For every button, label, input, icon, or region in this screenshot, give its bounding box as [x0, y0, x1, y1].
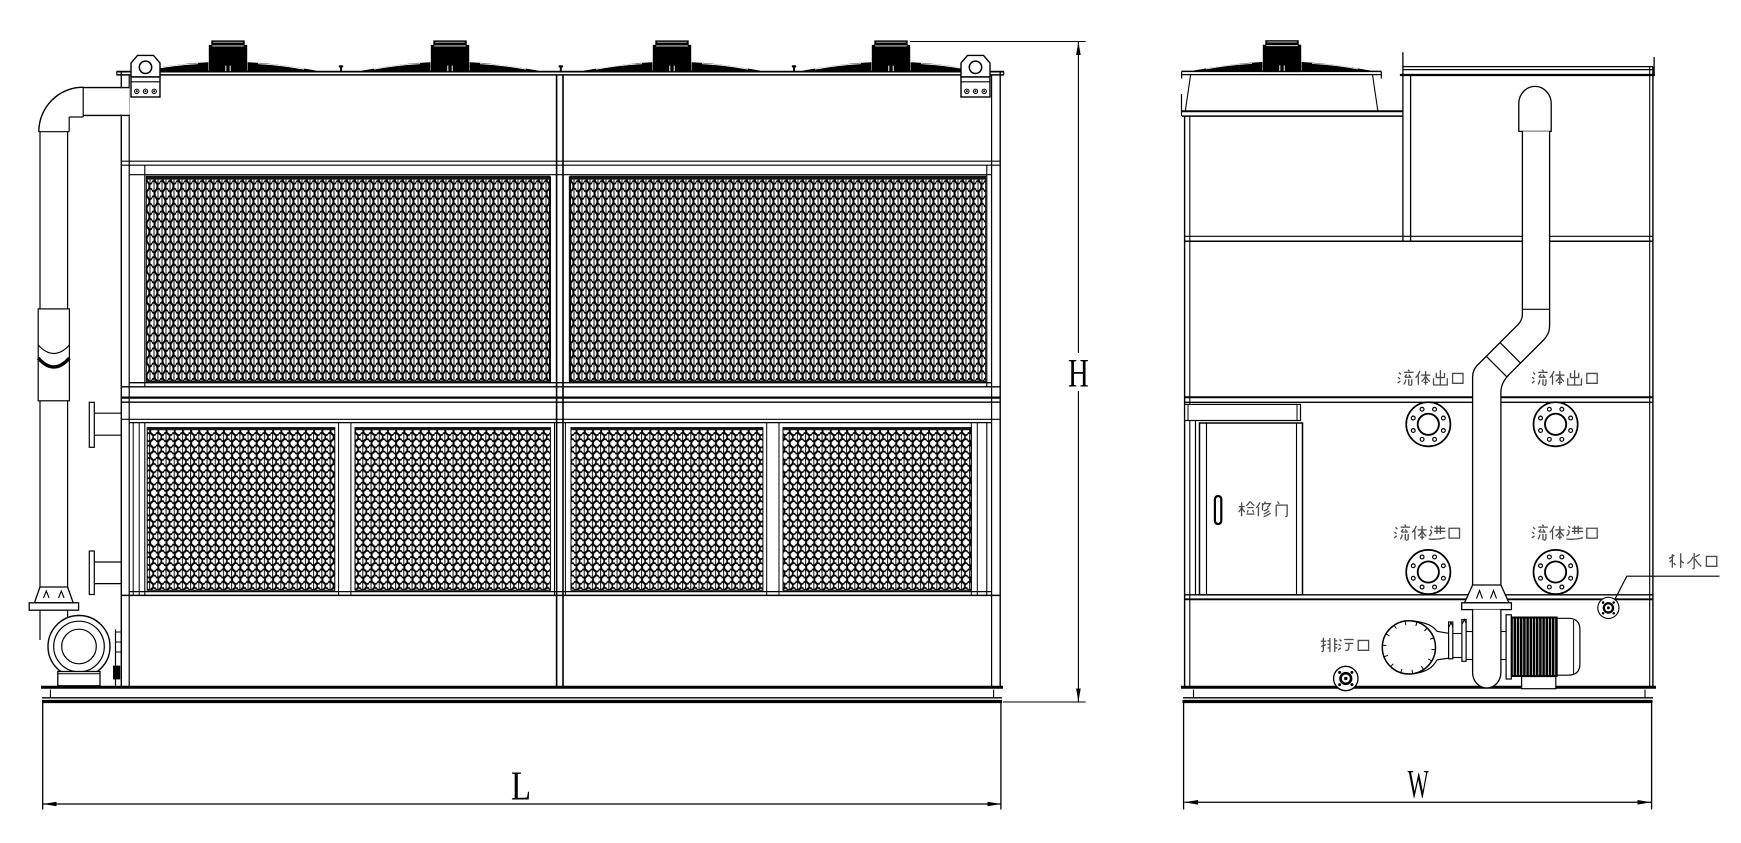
svg-text:L: L	[511, 764, 531, 809]
svg-text:H: H	[1068, 351, 1089, 396]
svg-text:W: W	[1408, 763, 1429, 807]
